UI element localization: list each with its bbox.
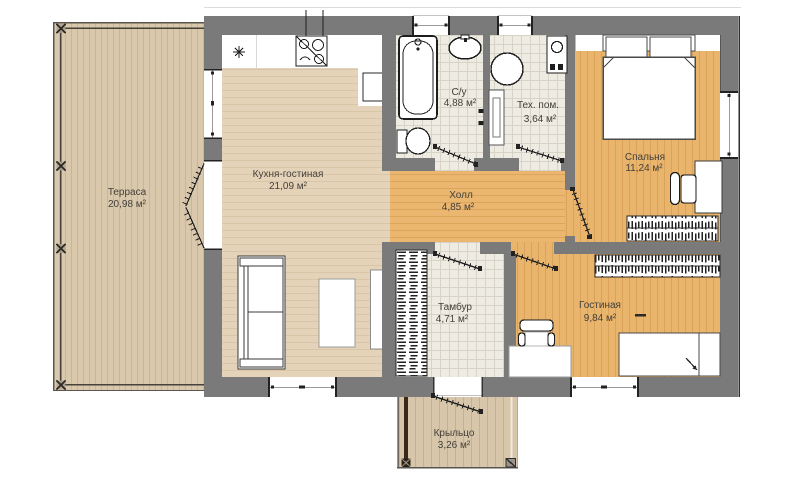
svg-text:Тех. пом.: Тех. пом. [517, 100, 559, 111]
svg-text:Тамбур: Тамбур [438, 301, 472, 313]
svg-text:Терраса: Терраса [108, 187, 147, 198]
svg-text:Крыльцо: Крыльцо [434, 428, 475, 439]
svg-text:Холл: Холл [449, 190, 473, 201]
svg-text:4,71 м²: 4,71 м² [436, 314, 469, 325]
svg-text:Гостиная: Гостиная [579, 300, 621, 311]
svg-text:С/у: С/у [452, 87, 467, 98]
svg-text:Кухня-гостиная: Кухня-гостиная [253, 169, 324, 180]
svg-text:4,88 м²: 4,88 м² [444, 98, 477, 109]
svg-text:3,26 м²: 3,26 м² [438, 440, 471, 451]
svg-text:4,85 м²: 4,85 м² [442, 202, 475, 213]
svg-text:3,64 м²: 3,64 м² [524, 114, 557, 125]
svg-text:11,24 м²: 11,24 м² [625, 163, 663, 174]
svg-text:Спальня: Спальня [625, 152, 665, 163]
svg-text:9,84 м²: 9,84 м² [584, 313, 617, 324]
svg-text:21,09 м²: 21,09 м² [269, 181, 308, 192]
svg-text:20,98 м²: 20,98 м² [108, 199, 147, 210]
